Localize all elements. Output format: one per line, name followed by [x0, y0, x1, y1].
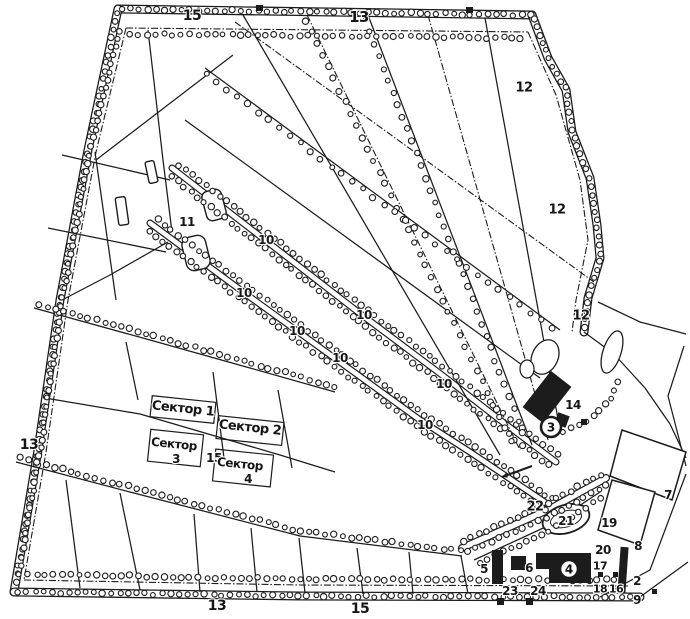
tree-icon	[567, 594, 573, 600]
tree-icon	[280, 576, 285, 581]
tree-icon	[22, 537, 28, 543]
tree-icon	[297, 33, 303, 39]
tree-icon	[408, 542, 413, 547]
tree-icon	[151, 593, 156, 598]
tree-icon	[336, 89, 342, 95]
tree-icon	[583, 166, 589, 172]
tree-icon	[266, 520, 271, 525]
tree-icon	[212, 592, 217, 597]
tree-icon	[25, 512, 31, 518]
tree-icon	[365, 577, 371, 583]
map-svg: 3415131212121313151110101010101010Сектор…	[0, 0, 690, 619]
tree-icon	[508, 294, 513, 299]
tree-icon	[574, 483, 580, 489]
tree-icon	[433, 34, 439, 40]
map-label: 10	[436, 377, 452, 391]
tree-icon	[540, 41, 545, 46]
tree-icon	[504, 532, 510, 538]
tree-icon	[415, 407, 420, 412]
tree-icon	[374, 376, 380, 382]
tree-icon	[445, 310, 450, 315]
map-label: 13	[20, 437, 38, 453]
tree-icon	[354, 123, 359, 128]
tree-icon	[167, 227, 172, 232]
tree-icon	[52, 353, 58, 359]
tree-icon	[381, 398, 387, 404]
tree-icon	[353, 362, 358, 367]
tree-icon	[344, 309, 349, 314]
tree-icon	[490, 403, 495, 408]
tree-icon	[194, 195, 200, 201]
tree-icon	[461, 538, 467, 544]
road-v-street-12	[126, 342, 138, 400]
tree-icon	[539, 317, 544, 322]
tree-icon	[222, 284, 227, 289]
tree-icon	[390, 576, 395, 581]
tree-icon	[90, 134, 96, 140]
tree-icon	[176, 163, 182, 169]
tree-icon	[314, 41, 320, 47]
tree-icon	[41, 589, 46, 594]
tree-icon	[144, 575, 150, 581]
tree-icon	[588, 490, 594, 496]
tree-icon	[326, 63, 332, 69]
tree-icon	[319, 353, 325, 359]
tree-icon	[423, 593, 428, 598]
road-v-street-4	[251, 528, 257, 592]
tree-icon	[287, 592, 293, 598]
tree-icon	[399, 114, 405, 120]
tree-icon	[527, 431, 532, 436]
tree-icon	[374, 9, 380, 15]
tree-icon	[310, 281, 316, 287]
tree-icon	[227, 290, 232, 295]
service-yard	[598, 480, 655, 545]
tree-icon	[451, 391, 457, 397]
tree-icon	[568, 425, 574, 431]
tree-icon	[394, 102, 400, 108]
pond-or-oval	[597, 328, 628, 375]
building-black	[492, 550, 503, 584]
tree-icon	[367, 29, 372, 34]
tree-icon	[484, 529, 490, 535]
tree-icon	[391, 345, 397, 351]
tree-icon	[202, 252, 208, 258]
tree-icon	[517, 302, 522, 307]
tree-icon	[282, 9, 288, 15]
tree-icon	[262, 314, 267, 319]
tree-icon	[525, 577, 531, 583]
tree-icon	[169, 174, 174, 179]
tree-icon	[528, 311, 533, 316]
tree-icon	[395, 393, 400, 398]
tree-icon	[150, 332, 156, 338]
tree-icon	[36, 302, 42, 308]
map-label: 17	[593, 560, 607, 573]
tree-icon	[126, 572, 132, 578]
tree-icon	[83, 590, 88, 595]
road-east-road-5	[640, 562, 688, 597]
tree-icon	[453, 374, 459, 380]
tree-icon	[86, 153, 91, 158]
tree-icon	[459, 379, 464, 384]
tree-icon	[501, 11, 507, 17]
tree-icon	[592, 210, 597, 215]
tree-icon	[551, 510, 557, 516]
tree-icon	[425, 11, 430, 16]
map-label: 12	[572, 309, 589, 324]
tree-icon	[323, 293, 329, 299]
tree-icon	[539, 458, 545, 464]
map-label: 20	[595, 543, 611, 557]
tree-icon	[424, 544, 429, 549]
tree-icon	[297, 528, 303, 534]
tree-icon	[99, 590, 105, 596]
tree-icon	[371, 42, 376, 47]
tree-icon	[594, 225, 599, 230]
tree-icon	[592, 275, 597, 280]
tree-icon	[280, 33, 285, 38]
tree-icon	[374, 34, 379, 39]
tree-icon	[388, 592, 394, 598]
tree-icon	[401, 397, 407, 403]
tree-icon	[78, 202, 83, 207]
tree-icon	[214, 210, 220, 216]
tree-icon	[468, 384, 473, 389]
tree-icon	[408, 9, 414, 15]
tree-icon	[422, 232, 428, 238]
tree-icon	[201, 200, 206, 205]
road-east-road-2	[598, 302, 686, 334]
tree-icon	[546, 501, 552, 507]
tree-icon	[304, 261, 310, 267]
tree-icon	[110, 480, 116, 486]
tree-icon	[343, 98, 349, 104]
tree-icon	[407, 577, 412, 582]
tree-icon	[313, 529, 319, 535]
tree-icon	[437, 437, 443, 443]
map-label: 8	[634, 539, 642, 553]
tree-icon	[208, 506, 213, 511]
tree-icon	[192, 502, 197, 507]
map-label: 10	[417, 418, 433, 432]
tree-icon	[450, 249, 456, 255]
tree-icon	[189, 242, 195, 248]
tree-icon	[222, 214, 228, 220]
tree-icon	[445, 249, 450, 254]
tree-icon	[382, 202, 387, 207]
tree-icon	[31, 479, 37, 485]
tree-icon	[508, 483, 513, 488]
map-label: 10	[332, 351, 348, 365]
tree-icon	[338, 303, 343, 308]
road-plaza-north	[148, 30, 172, 232]
tree-icon	[245, 592, 251, 598]
map-label: 15	[351, 601, 369, 617]
tree-icon	[424, 34, 430, 40]
tree-icon	[339, 594, 344, 599]
tree-icon	[515, 515, 521, 521]
tree-icon	[265, 116, 271, 122]
tree-icon	[230, 576, 235, 581]
tree-icon	[197, 33, 202, 38]
road-v-street-8	[461, 556, 468, 594]
tree-icon	[160, 591, 165, 596]
circled-number-marker: 3	[541, 417, 561, 437]
tree-icon	[416, 577, 421, 582]
tree-icon	[513, 529, 518, 534]
tree-icon	[577, 595, 582, 600]
tree-icon	[208, 203, 214, 209]
tree-icon	[408, 138, 414, 144]
tree-icon	[251, 219, 257, 225]
tree-icon	[30, 496, 35, 501]
tree-icon	[273, 576, 278, 581]
tree-icon	[572, 135, 578, 141]
tree-icon	[450, 577, 455, 582]
tree-icon	[46, 305, 51, 310]
tree-icon	[126, 482, 132, 488]
tree-icon	[174, 249, 180, 255]
tree-icon	[185, 592, 190, 597]
tree-icon	[238, 575, 244, 581]
tree-icon	[604, 576, 610, 582]
tree-icon	[531, 16, 537, 22]
tree-icon	[170, 6, 176, 12]
tree-icon	[329, 592, 335, 598]
tree-icon	[344, 292, 349, 297]
building-black	[511, 556, 526, 570]
tree-icon	[144, 332, 149, 337]
map-label: 9	[633, 593, 641, 607]
tree-icon	[291, 372, 296, 377]
tree-icon	[298, 577, 303, 582]
tree-icon	[314, 33, 319, 38]
tree-icon	[142, 487, 148, 493]
tree-icon	[486, 471, 491, 476]
map-label: 24	[530, 584, 546, 598]
tree-icon	[201, 269, 206, 274]
tree-icon	[197, 249, 202, 254]
tree-icon	[212, 8, 218, 14]
tree-icon	[275, 324, 281, 330]
tree-icon	[394, 408, 399, 413]
tree-icon	[558, 79, 564, 85]
tree-icon	[304, 343, 309, 348]
tree-icon	[377, 335, 382, 340]
tree-icon	[485, 391, 490, 396]
tree-icon	[418, 252, 423, 257]
tree-icon	[76, 211, 82, 217]
tree-icon	[258, 364, 264, 370]
tree-icon	[409, 34, 414, 39]
tree-icon	[531, 536, 536, 541]
tree-icon	[517, 36, 523, 42]
tree-icon	[307, 149, 313, 155]
map-label: 18	[593, 583, 607, 596]
tree-icon	[416, 595, 421, 600]
tree-icon	[355, 594, 360, 599]
tree-icon	[498, 521, 504, 527]
tree-icon	[591, 413, 597, 419]
tree-icon	[502, 34, 507, 39]
tree-icon	[338, 288, 343, 293]
tree-icon	[194, 265, 199, 270]
tree-icon	[23, 530, 28, 535]
tree-icon	[522, 476, 528, 482]
tree-icon	[584, 300, 590, 306]
tree-icon	[465, 593, 471, 599]
tree-icon	[51, 361, 56, 366]
tree-icon	[603, 482, 609, 488]
tree-icon	[175, 341, 181, 347]
tree-icon	[446, 236, 451, 241]
tree-icon	[27, 505, 33, 511]
tree-icon	[539, 532, 545, 538]
tree-icon	[495, 286, 501, 292]
tree-icon	[501, 381, 507, 387]
tree-icon	[458, 333, 463, 338]
tree-icon	[253, 594, 258, 599]
tree-icon	[591, 500, 596, 505]
tree-icon	[136, 573, 142, 579]
tree-icon	[425, 576, 431, 582]
tree-icon	[546, 529, 551, 534]
tree-icon	[188, 259, 194, 265]
tree-icon	[497, 414, 502, 419]
tree-icon	[596, 408, 602, 414]
tree-icon	[480, 395, 485, 400]
tree-icon	[550, 65, 555, 70]
circled-number-marker: 4	[560, 560, 578, 578]
tree-icon	[441, 224, 446, 229]
tree-icon	[175, 233, 181, 239]
tree-icon	[569, 489, 575, 495]
tree-icon	[399, 34, 404, 39]
tree-icon	[201, 348, 207, 354]
tree-icon	[339, 33, 344, 38]
map-label: 2	[633, 574, 641, 588]
tree-icon	[222, 9, 227, 14]
tree-icon	[105, 53, 110, 58]
tree-icon	[457, 396, 462, 401]
tree-icon	[221, 575, 226, 580]
tree-icon	[296, 273, 302, 279]
map-label: 4	[244, 472, 252, 486]
tree-icon	[519, 11, 525, 17]
tree-icon	[288, 34, 293, 39]
tree-icon	[115, 36, 120, 41]
tree-icon	[330, 75, 336, 81]
tree-icon	[153, 234, 159, 240]
tree-icon	[249, 516, 255, 522]
tree-icon	[186, 574, 192, 580]
tree-icon	[41, 429, 47, 435]
tree-icon	[95, 118, 101, 124]
tree-icon	[383, 341, 388, 346]
tree-icon	[94, 316, 100, 322]
tree-icon	[299, 140, 304, 145]
tree-icon	[318, 338, 323, 343]
tree-icon	[474, 309, 479, 314]
tree-icon	[509, 546, 514, 551]
tree-icon	[392, 11, 397, 16]
tree-icon	[517, 419, 522, 424]
tree-icon	[55, 328, 61, 334]
tree-icon	[398, 332, 403, 337]
tree-icon	[234, 357, 239, 362]
tree-icon	[387, 388, 392, 393]
tree-icon	[532, 452, 538, 458]
tree-icon	[66, 261, 71, 266]
tree-icon	[324, 278, 329, 283]
cemetery-site-plan: 3415131212121313151110101010101010Сектор…	[0, 0, 690, 619]
tree-icon	[615, 379, 621, 385]
tree-icon	[467, 12, 472, 17]
tree-icon	[385, 78, 390, 83]
tree-icon	[101, 478, 106, 483]
tree-icon	[174, 497, 180, 503]
tree-icon	[93, 127, 98, 132]
tree-icon	[399, 11, 404, 16]
tree-icon	[111, 27, 116, 32]
tree-icon	[34, 589, 39, 594]
tree-icon	[512, 406, 517, 411]
tree-icon	[589, 184, 595, 190]
tree-icon	[443, 576, 449, 582]
tree-icon	[452, 321, 457, 326]
tree-icon	[34, 459, 40, 465]
tree-icon	[492, 594, 498, 600]
tree-icon	[491, 524, 497, 530]
tree-icon	[546, 461, 552, 467]
tree-icon	[136, 7, 141, 12]
tree-icon	[551, 593, 557, 599]
tree-icon	[414, 344, 419, 349]
tree-icon	[229, 221, 234, 226]
map-label: 6	[525, 561, 533, 575]
tree-icon	[443, 10, 448, 15]
tree-icon	[112, 19, 118, 25]
tree-icon	[297, 256, 303, 262]
tree-icon	[359, 135, 365, 141]
tree-icon	[212, 576, 218, 582]
tree-icon	[488, 344, 494, 350]
tree-icon	[283, 329, 288, 334]
tree-icon	[68, 571, 74, 577]
tree-icon	[412, 240, 417, 245]
map-label: 10	[356, 308, 372, 322]
tree-icon	[379, 319, 384, 324]
map-label: 15	[183, 8, 201, 24]
tree-icon	[166, 244, 172, 250]
tree-icon	[83, 168, 89, 174]
tree-icon	[389, 538, 395, 544]
tree-icon	[14, 579, 20, 585]
tree-icon	[478, 412, 483, 417]
tree-icon	[270, 319, 276, 325]
tree-icon	[81, 177, 87, 183]
tree-icon	[75, 590, 80, 595]
tree-icon	[510, 13, 515, 18]
tree-icon	[391, 90, 396, 95]
tree-icon	[36, 453, 42, 459]
tree-icon	[338, 171, 344, 177]
tree-icon	[25, 571, 30, 576]
tree-icon	[128, 5, 133, 10]
tree-icon	[472, 461, 477, 466]
tree-icon	[105, 77, 111, 83]
